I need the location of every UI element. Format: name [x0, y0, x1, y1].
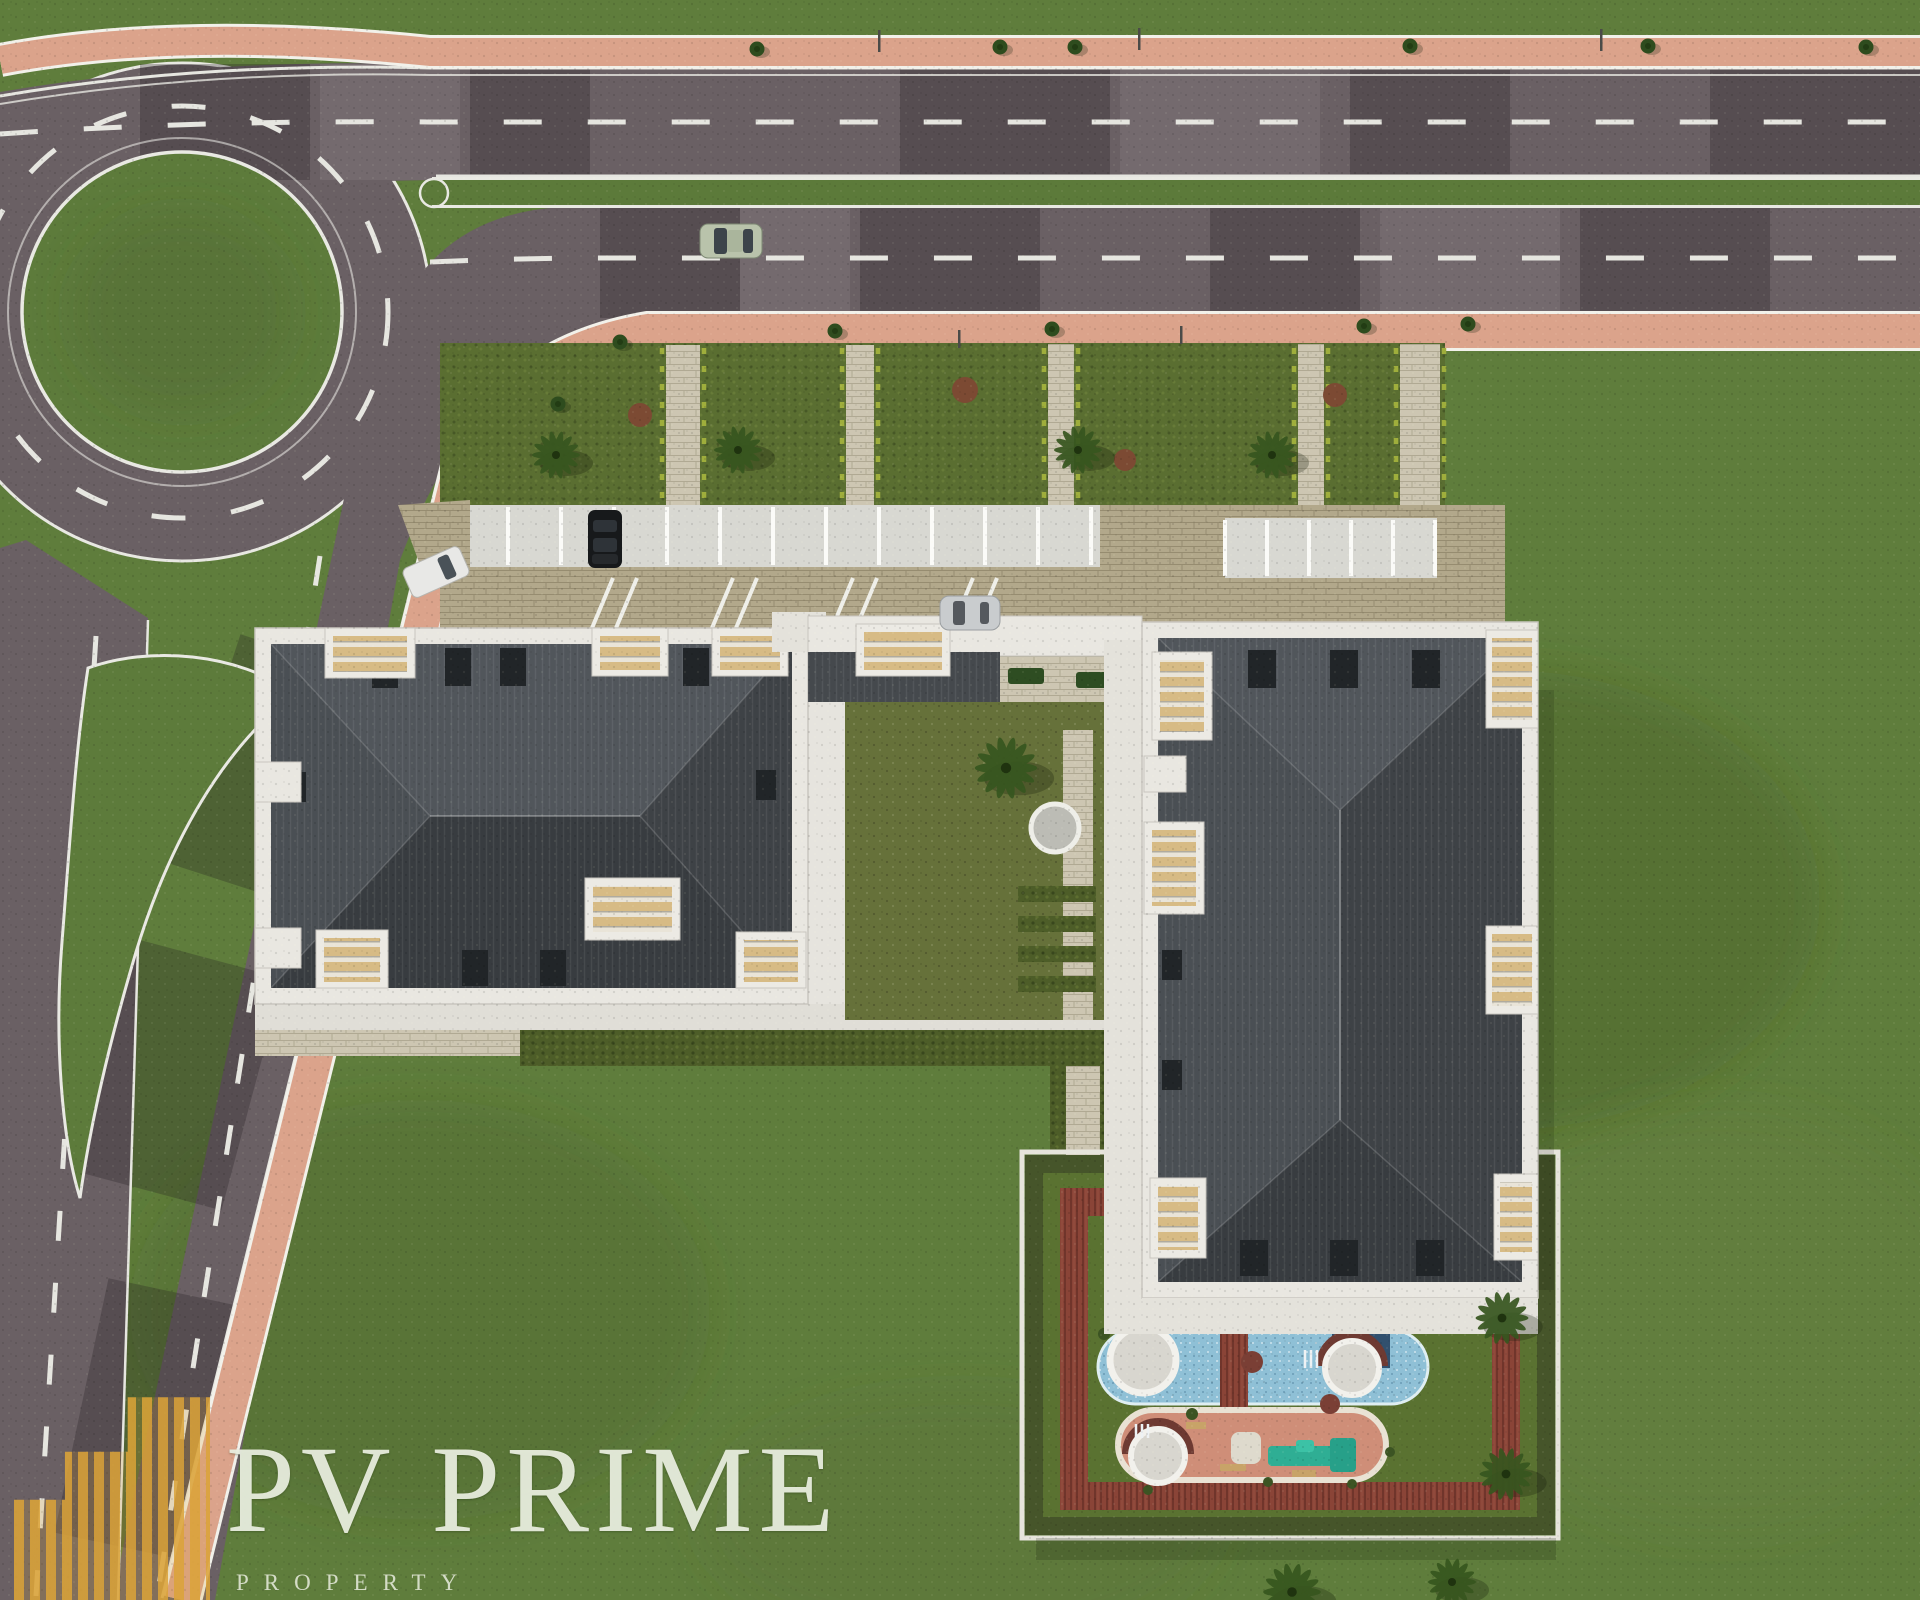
site-plan-render: PV PRIME PROPERTY — [0, 0, 1920, 1600]
silver-car — [940, 596, 1000, 630]
grain-overlay — [0, 0, 1920, 1600]
render-canvas — [0, 0, 1920, 1600]
parked-suv — [588, 510, 622, 568]
car-on-road — [700, 224, 762, 258]
